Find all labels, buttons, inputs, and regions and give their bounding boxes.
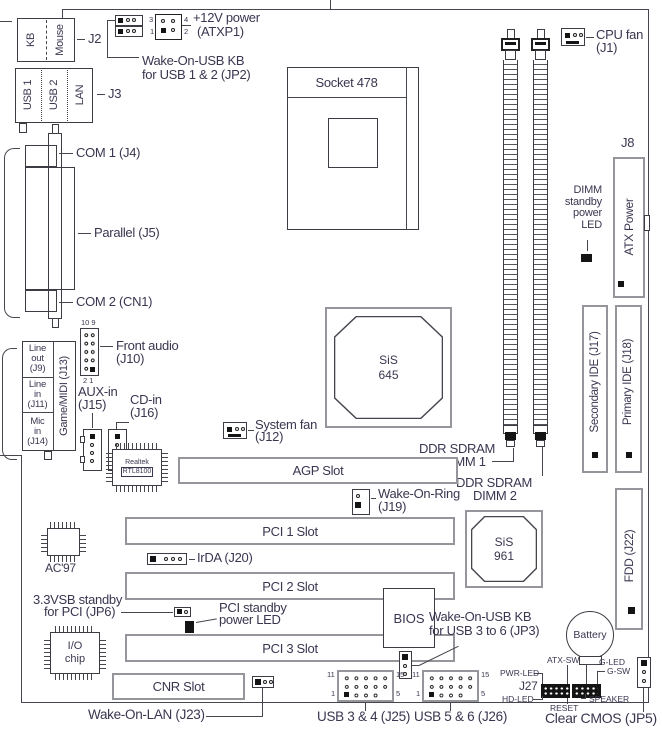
j27-gap [570, 684, 572, 698]
atx-sw-leader [567, 665, 568, 684]
j8-label: J8 [621, 136, 634, 150]
dimm-led-label: DIMM standby power LED [552, 185, 602, 231]
pci1-slot: PCI 1 Slot [125, 517, 455, 545]
wol-pin [269, 680, 273, 684]
wor-pin1 [355, 502, 361, 508]
ddr1-leader-h [492, 461, 513, 462]
irda-pin [164, 557, 168, 561]
ac97-chip [47, 528, 80, 556]
usb56-blank-mask [467, 690, 476, 700]
usb-divider-1 [41, 70, 42, 121]
usb34-blank-mask [382, 690, 391, 700]
reset-leader [567, 698, 568, 704]
jp3-label-1: Wake-On-USB KB [429, 610, 531, 624]
atxp1-pin [161, 19, 165, 23]
cpu-fan-pin [579, 33, 583, 37]
j27-label: J27 [519, 680, 537, 693]
dimm2-latch-mark [535, 42, 546, 45]
cpu-fan-pin1 [565, 33, 570, 38]
dsub-rail [48, 133, 62, 319]
wol-leader-v [262, 688, 263, 717]
agp-slot: AGP Slot [178, 457, 458, 484]
ddr2-label-2: DIMM 2 [473, 489, 517, 503]
wor-leader [371, 498, 376, 499]
top-leader-line [330, 0, 331, 9]
pci-led-label-2: power LED [219, 613, 281, 627]
usb56-pin11: 11 [412, 671, 420, 679]
aux-pin [90, 459, 94, 463]
aux-pin1 [90, 434, 95, 439]
jp6-label-2: for PCI (JP6) [44, 605, 115, 619]
cd-leader-h [116, 422, 129, 423]
g-sw-leader-h [597, 671, 605, 672]
front-audio-pins-top: 10 9 [81, 319, 96, 327]
cd-leader-v [116, 422, 117, 429]
jp2-leader-v [107, 20, 108, 58]
usb-lan-pin [19, 123, 27, 133]
realtek-label-2: RTL8100 [121, 467, 154, 477]
realtek-label-1: Realtek [125, 459, 149, 467]
com2-label: COM 2 (CN1) [76, 295, 152, 309]
jp5-pin [642, 670, 646, 674]
secondary-ide-pin1 [592, 452, 598, 458]
atxp1-pin [171, 19, 175, 23]
chassis-tick-top [0, 21, 12, 22]
io-chip: I/Ochip [50, 632, 100, 674]
irda-leader [189, 559, 195, 560]
pci-led-leader [196, 618, 217, 623]
cd-in-label-2: (J16) [130, 406, 158, 420]
cpu-fan-pin [573, 33, 577, 37]
hd-led-label: HD-LED [502, 695, 534, 704]
usb2-label: USB 2 [48, 80, 60, 110]
ddr2-leader-v [542, 447, 543, 476]
atxp1-connector [155, 14, 182, 40]
dimm1-latch-mark [505, 42, 516, 45]
atx-power-notch [644, 215, 650, 231]
usb34-pin5: 5 [396, 690, 400, 698]
speaker-label: SPEAKER [589, 695, 629, 704]
dsub-rail-pin-bottom [52, 318, 59, 328]
atxp1-num2: 2 [184, 28, 188, 36]
system-fan-leader [248, 430, 254, 431]
aux-notch-1 [80, 436, 85, 443]
atx-power-label: ATX Power [622, 198, 636, 255]
pci-standby-led [185, 621, 194, 633]
audio-divider-v [53, 341, 54, 451]
usb34-pin15: 15 [396, 671, 404, 679]
dimm-standby-led [581, 254, 592, 262]
mouse-label: Mouse [54, 24, 66, 56]
irda-pin1 [150, 556, 156, 562]
front-audio-leader [100, 346, 113, 347]
aux-leader [92, 413, 93, 428]
jp5-pin1 [641, 660, 647, 666]
g-sw-label: G-SW [607, 667, 630, 676]
usb56-pin1 [429, 692, 434, 697]
g-led-leader-v [586, 664, 587, 684]
jp6-pin1 [177, 609, 182, 614]
system-fan-pin [235, 427, 239, 431]
dimm2-bottom-tab [536, 440, 545, 447]
system-fan-bar [228, 434, 241, 437]
atxp1-num3: 3 [149, 16, 153, 24]
system-fan-pin [241, 427, 245, 431]
com1-label: COM 1 (J4) [76, 146, 140, 160]
clear-cmos-label: Clear CMOS (JP5) [545, 711, 657, 726]
aux-pin [90, 451, 94, 455]
socket-band-line [287, 97, 406, 98]
game-midi-label: Game/MIDI (J13) [58, 356, 70, 436]
motherboard-diagram: KB Mouse J2 USB 1 USB 2 LAN J3 COM 1 (J4… [0, 0, 662, 735]
clear-cmos-leader [643, 688, 644, 712]
wol-leader-h [206, 716, 262, 717]
fdd-label: FDD (J22) [622, 530, 636, 583]
aux-in-label-2: (J15) [78, 398, 106, 412]
jp5-pin [642, 679, 646, 683]
irda-pin [178, 557, 182, 561]
usb34-label: USB 3 & 4 (J25) [317, 710, 410, 724]
cnr-slot: CNR Slot [112, 673, 245, 700]
dimm2-notch [535, 50, 546, 60]
dsub-bracket [4, 148, 20, 318]
atxp1-num1: 1 [150, 28, 154, 36]
wor-pin [356, 494, 360, 498]
line-out-label: Lineout(J9) [22, 342, 53, 376]
ac97-label: AC'97 [45, 562, 76, 575]
atxp1-num4: 4 [184, 16, 188, 24]
hd-led-leader-v [542, 696, 543, 700]
atxp1-label-1: +12V power [193, 11, 260, 25]
pwr-led-leader-v [542, 673, 543, 684]
usb-divider-2 [67, 70, 68, 121]
usb56-pin5: 5 [481, 690, 485, 698]
irda-label: IrDA (J20) [197, 551, 253, 565]
board-edge-tick [62, 9, 63, 18]
jp2-leader-h2 [107, 57, 139, 58]
atxp1-leader [182, 25, 191, 26]
usb56-pin15: 15 [481, 671, 489, 679]
atx-power-pin1 [618, 281, 624, 287]
bios-chip: BIOS [383, 588, 435, 648]
cpu-fan-leader [586, 37, 594, 38]
lan-label: LAN [74, 85, 86, 106]
primary-ide-label: Primary IDE (J18) [622, 339, 634, 425]
wol-label: Wake-On-LAN (J23) [88, 708, 205, 722]
usb1-label: USB 1 [22, 80, 34, 110]
jp3-label-2: for USB 3 to 6 (JP3) [429, 624, 539, 638]
com2-leader [59, 302, 73, 303]
socket-lever-rail [406, 67, 407, 230]
audio-bracket [2, 348, 17, 460]
sis961-label: SiS961 [465, 510, 543, 588]
dimm1-slot [503, 60, 518, 426]
wol-pin [263, 680, 267, 684]
line-in-label: Linein(J11) [22, 378, 53, 411]
j3-label: J3 [108, 87, 121, 101]
socket-478-label: Socket 478 [287, 76, 406, 90]
realtek-chip: Realtek RTL8100 [112, 449, 162, 486]
jp2-pin1 [118, 18, 123, 23]
cpu-fan-bar [566, 41, 579, 44]
io-pins-right [100, 637, 106, 669]
ddr1-leader-v [513, 448, 514, 462]
j2-leader [77, 39, 85, 40]
cd-pin1 [115, 434, 120, 439]
dimm1-notch [505, 50, 516, 60]
dimm-led-leader [587, 240, 588, 251]
jp2-pin1b [118, 29, 123, 34]
jp2-pin [126, 29, 130, 33]
aux-notch-2 [80, 456, 85, 463]
g-led-leader-h [586, 664, 597, 665]
j3-leader [97, 94, 105, 95]
jp3-pin1 [402, 654, 408, 660]
wol-pin1 [255, 679, 261, 685]
jp2-pin [126, 18, 130, 22]
usb56-pin1-num: 1 [416, 690, 420, 698]
mic-in-label: Micin(J14) [22, 413, 53, 450]
cpu-fan-label-2: (J1) [596, 41, 617, 55]
jp2-pin [132, 29, 136, 33]
dimm1-bottom-tab [506, 440, 515, 447]
jp3-pin [403, 664, 407, 668]
dimm1-latch-bottom-mark [505, 432, 516, 440]
system-fan-pin1 [227, 427, 232, 432]
ac97-pins-right [80, 532, 86, 552]
g-sw-leader-v [597, 671, 598, 684]
dimm2-slot [533, 60, 548, 426]
realtek-pins-bottom [116, 486, 158, 492]
jp2-label-2: for USB 1 & 2 (JP2) [142, 68, 250, 82]
realtek-pins-right [162, 453, 168, 482]
jp2-pin [132, 18, 136, 22]
parallel-leader [78, 233, 91, 234]
aux-pin [90, 443, 94, 447]
primary-ide-pin1 [626, 452, 632, 458]
board-edge-top [62, 9, 649, 10]
jp2-leader-h1 [107, 20, 115, 21]
sis645-label: SiS645 [325, 307, 452, 428]
fdd-pin1 [628, 607, 635, 614]
atxp1-pin [171, 28, 175, 32]
usb34-pin1-num: 1 [331, 690, 335, 698]
usb34-pin11: 11 [327, 671, 335, 679]
front-audio-pin1 [90, 367, 95, 372]
j2-label: J2 [88, 32, 101, 46]
wake-on-ring-label-2: (J19) [378, 500, 406, 514]
kb-label: KB [25, 33, 37, 47]
dsub-rail-pin-top [52, 124, 59, 134]
board-edge-left [21, 455, 22, 703]
parallel-label: Parallel (J5) [94, 226, 159, 240]
socket-inner [328, 118, 378, 168]
com1-leader [59, 153, 73, 154]
kb-mouse-divider [46, 20, 47, 60]
board-edge-right [648, 9, 649, 703]
system-fan-label-2: (J12) [255, 430, 283, 444]
usb34-pin1 [344, 692, 349, 697]
atx-sw-label: ATX-SW [547, 656, 579, 665]
jp2-label-1: Wake-On-USB KB [142, 54, 244, 68]
battery: Battery [566, 611, 614, 659]
irda-pin [171, 557, 175, 561]
front-audio-label-2: (J10) [116, 352, 144, 366]
atxp1-label-2: (ATXP1) [197, 25, 244, 39]
jp6-pin [184, 610, 188, 614]
jp6-leader [121, 612, 173, 613]
audio-pin [44, 451, 52, 460]
usb56-label: USB 5 & 6 (J26) [414, 710, 507, 724]
dimm2-latch-bottom-mark [535, 432, 546, 440]
io-pins-bottom [55, 674, 95, 680]
speaker-leader-h [581, 698, 586, 699]
j27-pins-left [543, 686, 569, 696]
atxp1-pin1 [161, 28, 166, 33]
secondary-ide-label: Secondary IDE (J17) [589, 331, 601, 432]
